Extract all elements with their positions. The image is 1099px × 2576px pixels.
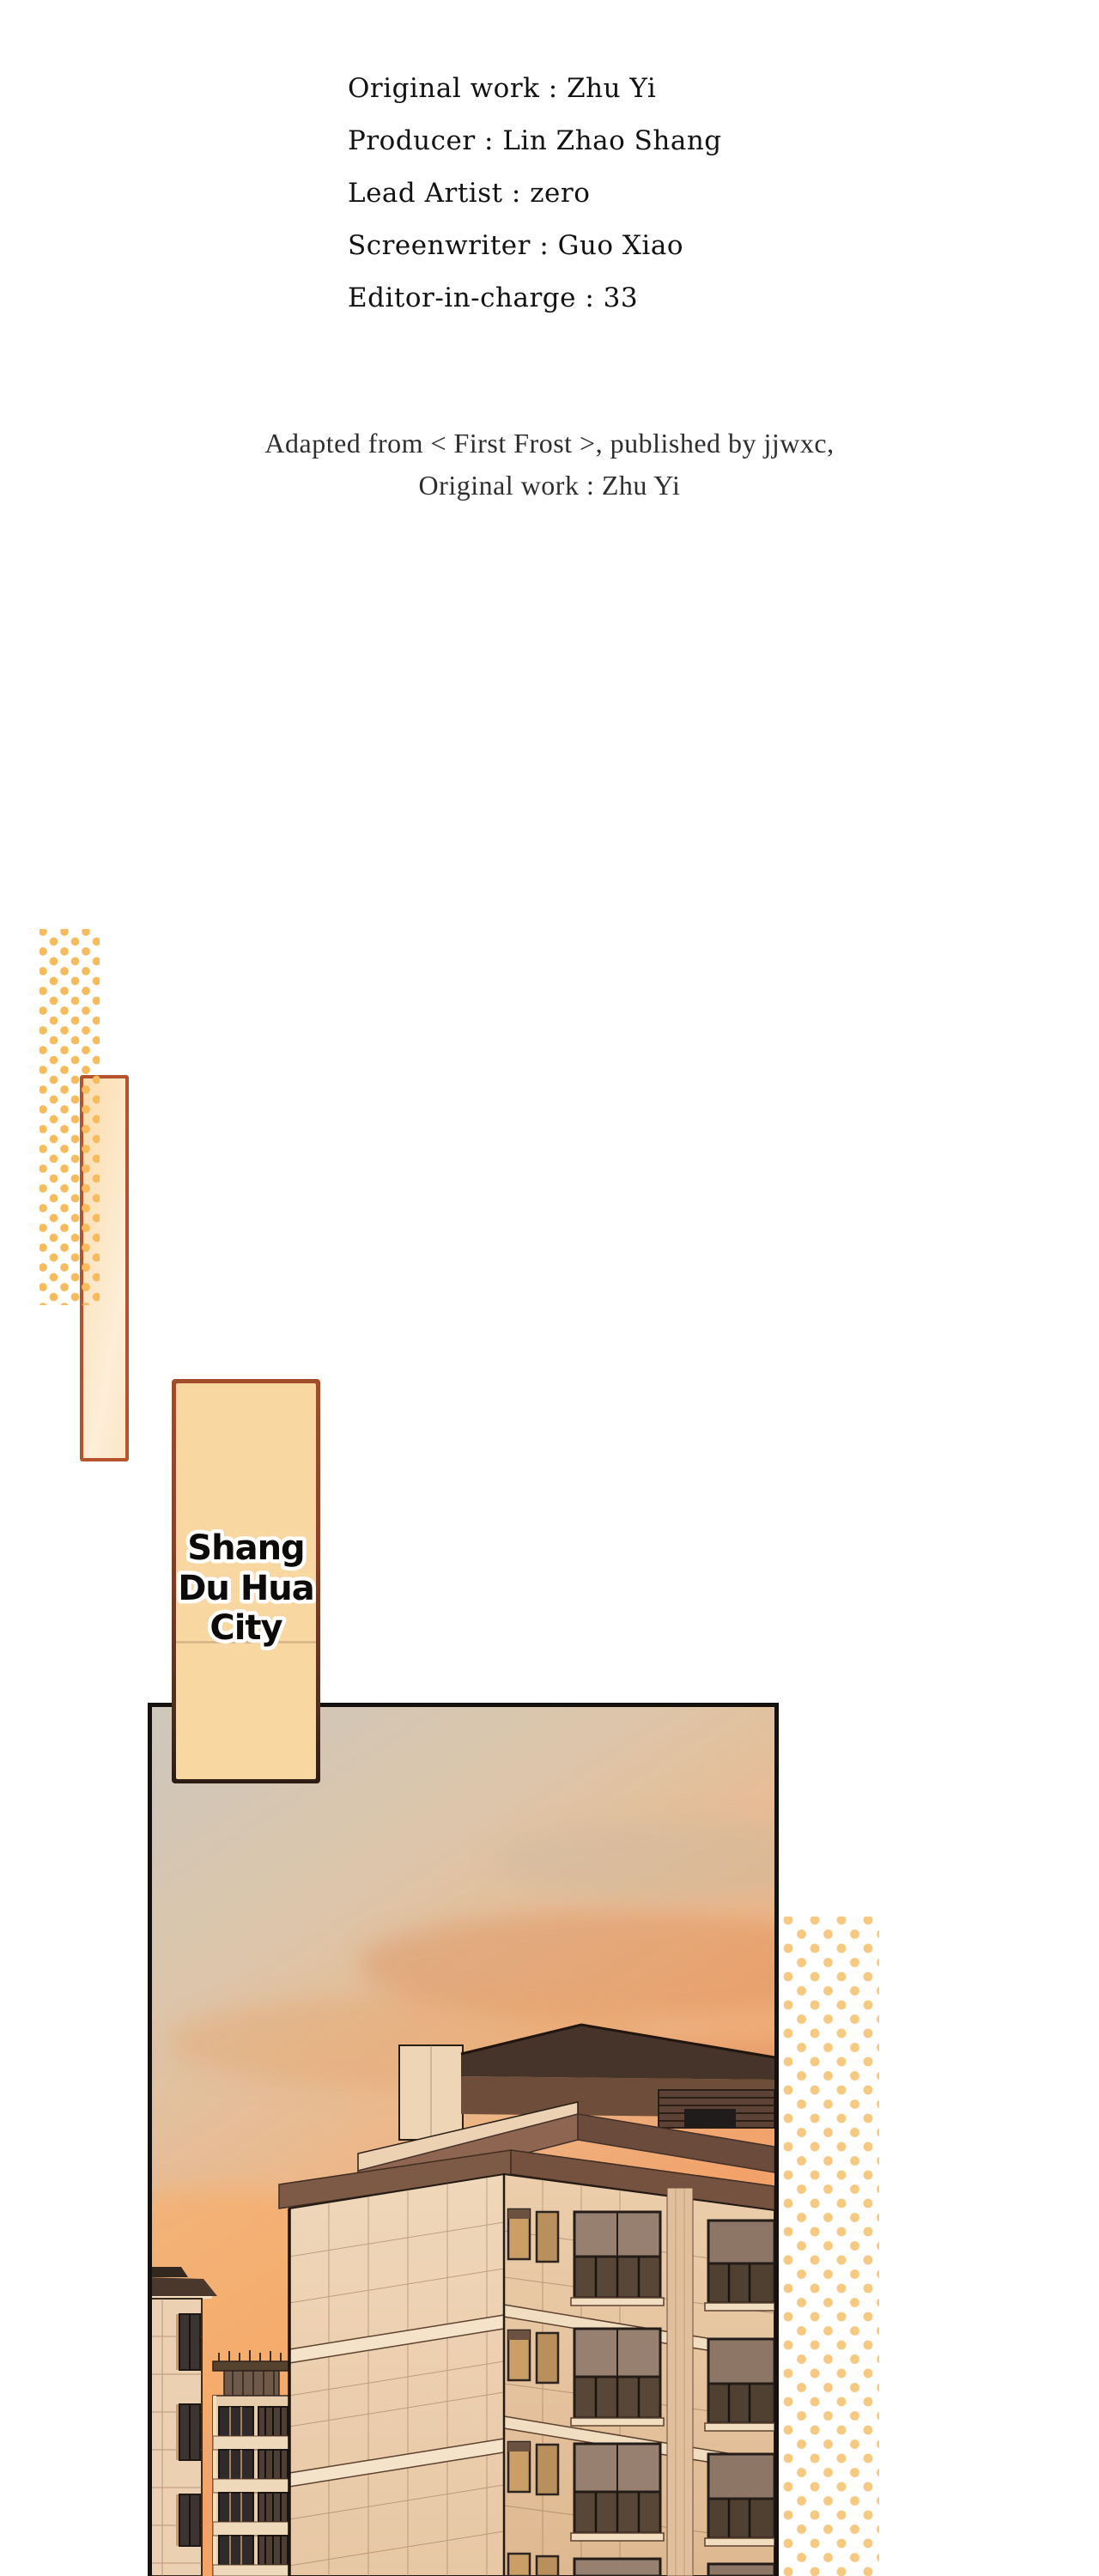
- pilaster: [667, 2188, 693, 2576]
- location-label-text: Shang Du Hua City: [176, 1383, 316, 1779]
- credit-line-screenwriter: Screenwriter : Guo Xiao: [348, 220, 722, 272]
- location-label-fill: Shang Du Hua City: [176, 1383, 316, 1779]
- adaptation-note-line1: Adapted from < First Frost >, published …: [0, 422, 1099, 465]
- apartment-floors: [213, 2407, 292, 2576]
- balcony-window-unit: [571, 2329, 664, 2426]
- balcony-window-unit: [708, 2564, 774, 2576]
- balcony-window-unit: [705, 2454, 774, 2546]
- halftone-dots-strip-right: [783, 1917, 879, 2576]
- credits-block: Original work : Zhu Yi Producer : Lin Zh…: [348, 63, 722, 325]
- location-label-line3: City: [209, 1608, 282, 1648]
- facade-right-face: [504, 2174, 774, 2576]
- balcony-window-unit: [705, 2221, 774, 2311]
- credit-line-original-work: Original work : Zhu Yi: [348, 63, 722, 115]
- balcony-window-unit: [571, 2444, 664, 2541]
- sunset-city-illustration: [152, 1707, 774, 2576]
- decorative-rectangle: [80, 1075, 129, 1461]
- credit-line-editor: Editor-in-charge : 33: [348, 272, 722, 325]
- adaptation-note-line2: Original work : Zhu Yi: [0, 465, 1099, 507]
- balcony-window-unit: [705, 2339, 774, 2431]
- facade-left-face: [289, 2174, 504, 2576]
- balcony-window-unit: [571, 2212, 664, 2306]
- location-label-line2: Du Hua: [178, 1569, 314, 1608]
- location-label-line1: Shang: [187, 1528, 304, 1568]
- credit-line-producer: Producer : Lin Zhao Shang: [348, 115, 722, 167]
- window-column: [176, 2314, 200, 2546]
- location-label-box: Shang Du Hua City: [172, 1379, 320, 1783]
- comic-panel: [148, 1703, 779, 2576]
- balcony-window-unit: [574, 2559, 660, 2576]
- adaptation-note: Adapted from < First Frost >, published …: [0, 422, 1099, 507]
- louvre-vent: [659, 2090, 774, 2128]
- credit-line-lead-artist: Lead Artist : zero: [348, 167, 722, 220]
- webtoon-page: { "credits": { "lines": [ "Original work…: [0, 0, 1099, 2576]
